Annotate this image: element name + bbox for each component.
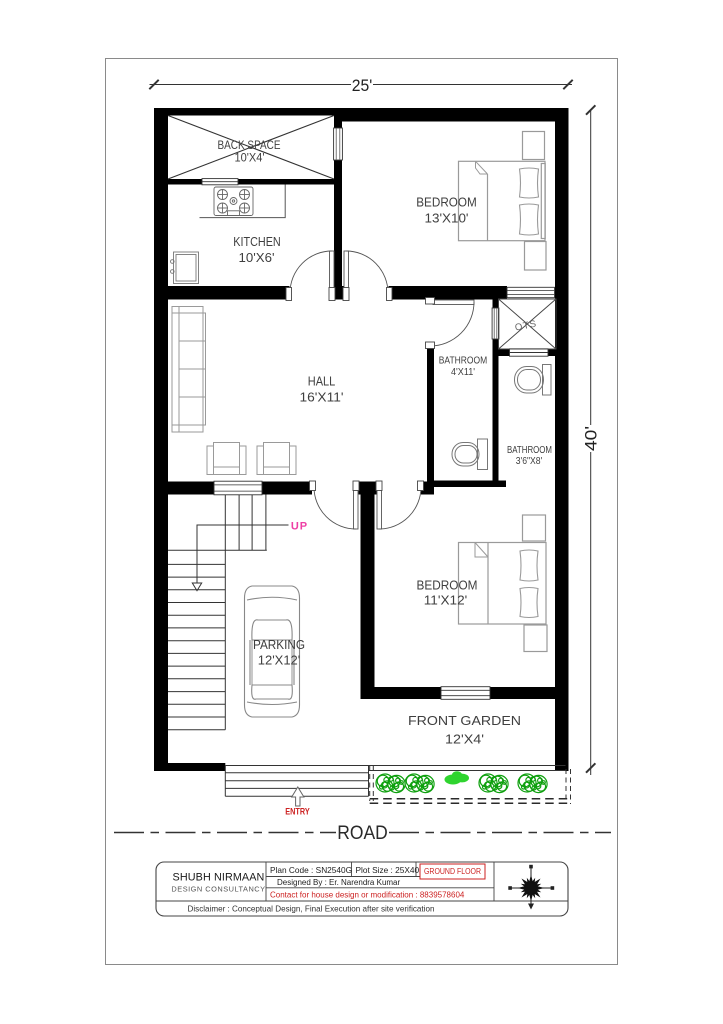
svg-text:40': 40'	[583, 426, 601, 451]
svg-text:SHUBH NIRMAAN: SHUBH NIRMAAN	[173, 872, 265, 884]
svg-text:PARKING: PARKING	[253, 637, 305, 652]
svg-text:ENTRY: ENTRY	[285, 807, 310, 817]
svg-text:12'X12': 12'X12'	[258, 653, 301, 668]
svg-text:FRONT GARDEN: FRONT GARDEN	[408, 713, 521, 728]
svg-text:10'X6': 10'X6'	[239, 251, 275, 265]
svg-text:ROAD: ROAD	[337, 823, 388, 844]
svg-text:13'X10': 13'X10'	[425, 211, 469, 226]
svg-text:GROUND FLOOR: GROUND FLOOR	[424, 866, 481, 876]
svg-text:10'X4': 10'X4'	[235, 151, 265, 165]
svg-text:11'X12': 11'X12'	[424, 593, 468, 608]
svg-text:BEDROOM: BEDROOM	[417, 578, 478, 593]
svg-text:Plan Code : SN2540G: Plan Code : SN2540G	[270, 865, 352, 875]
svg-text:BEDROOM: BEDROOM	[416, 195, 477, 210]
svg-text:KITCHEN: KITCHEN	[233, 235, 281, 249]
svg-text:16'X11': 16'X11'	[300, 390, 344, 405]
svg-text:Disclaimer : Conceptual Design: Disclaimer : Conceptual Design, Final Ex…	[188, 905, 435, 914]
svg-text:25': 25'	[352, 77, 373, 95]
svg-text:4'X11': 4'X11'	[451, 367, 475, 378]
svg-text:DESIGN CONSULTANCY: DESIGN CONSULTANCY	[171, 885, 265, 894]
svg-text:BATHROOM: BATHROOM	[507, 445, 552, 456]
svg-text:Plot Size : 25X40: Plot Size : 25X40	[356, 865, 420, 875]
svg-text:12'X4': 12'X4'	[445, 732, 484, 747]
svg-text:Contact for house design or mo: Contact for house design or modification…	[270, 891, 465, 900]
svg-text:BATHROOM: BATHROOM	[439, 356, 488, 367]
svg-text:Designed By : Er. Narendra Kum: Designed By : Er. Narendra Kumar	[277, 878, 401, 887]
svg-text:3'6"X8': 3'6"X8'	[516, 456, 543, 467]
svg-text:UP: UP	[291, 521, 308, 533]
svg-text:HALL: HALL	[308, 374, 336, 389]
